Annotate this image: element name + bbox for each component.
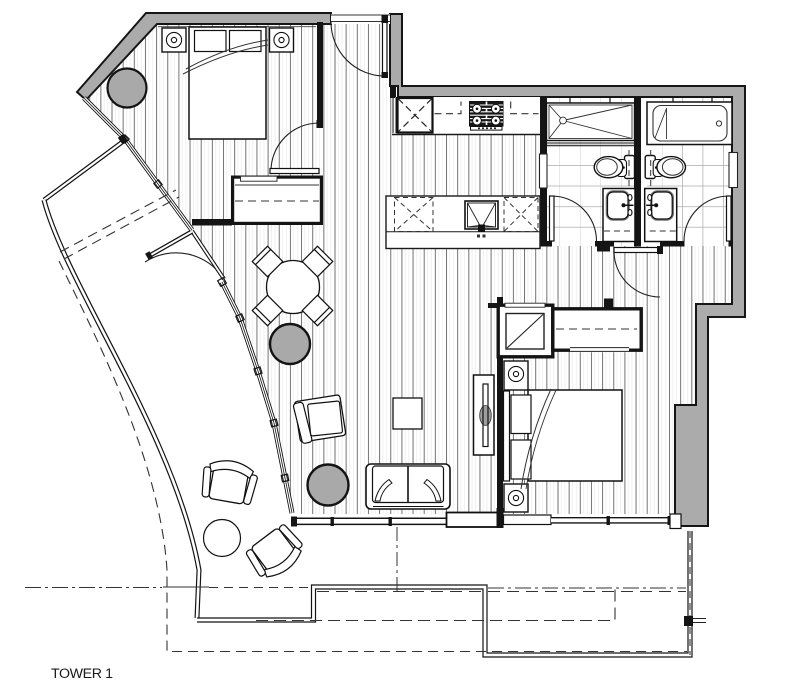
- svg-text:TOWER 1: TOWER 1: [51, 666, 113, 682]
